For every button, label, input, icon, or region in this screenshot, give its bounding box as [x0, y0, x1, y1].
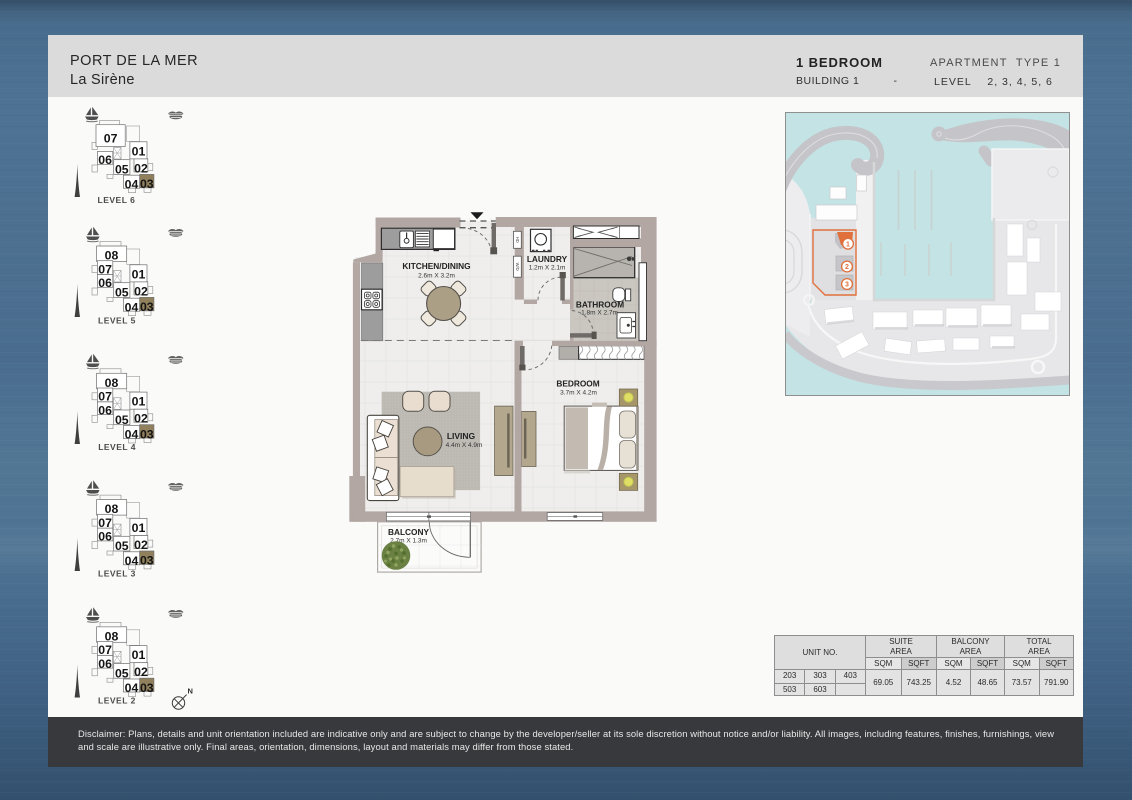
svg-text:LEVEL 4: LEVEL 4 — [98, 442, 136, 452]
svg-text:1.8m X 2.7m: 1.8m X 2.7m — [581, 310, 618, 317]
svg-text:LAUNDRY: LAUNDRY — [527, 254, 568, 264]
svg-text:1: 1 — [846, 241, 850, 248]
svg-text:BEDROOM: BEDROOM — [556, 379, 599, 389]
svg-text:N: N — [188, 687, 193, 696]
svg-text:LEVEL 2: LEVEL 2 — [98, 695, 136, 705]
svg-text:LEVEL 6: LEVEL 6 — [98, 195, 136, 205]
svg-text:W/D: W/D — [515, 263, 520, 271]
svg-text:4.4m X 4.9m: 4.4m X 4.9m — [446, 442, 483, 449]
svg-text:2: 2 — [845, 264, 849, 271]
svg-text:3.7m X 4.2m: 3.7m X 4.2m — [560, 390, 597, 397]
svg-text:HD: HD — [515, 237, 520, 243]
svg-text:BATHROOM: BATHROOM — [576, 300, 624, 310]
svg-text:07: 07 — [104, 132, 118, 146]
svg-text:LEVEL 5: LEVEL 5 — [98, 315, 136, 325]
svg-text:1.2m X 2.1m: 1.2m X 2.1m — [529, 265, 566, 272]
svg-text:BALCONY: BALCONY — [388, 527, 429, 537]
svg-text:LIVING: LIVING — [447, 431, 476, 441]
svg-text:KITCHEN/DINING: KITCHEN/DINING — [402, 261, 470, 271]
svg-text:3: 3 — [845, 282, 849, 289]
svg-text:2.6m X 3.2m: 2.6m X 3.2m — [418, 272, 455, 279]
svg-text:LEVEL 3: LEVEL 3 — [98, 569, 136, 579]
